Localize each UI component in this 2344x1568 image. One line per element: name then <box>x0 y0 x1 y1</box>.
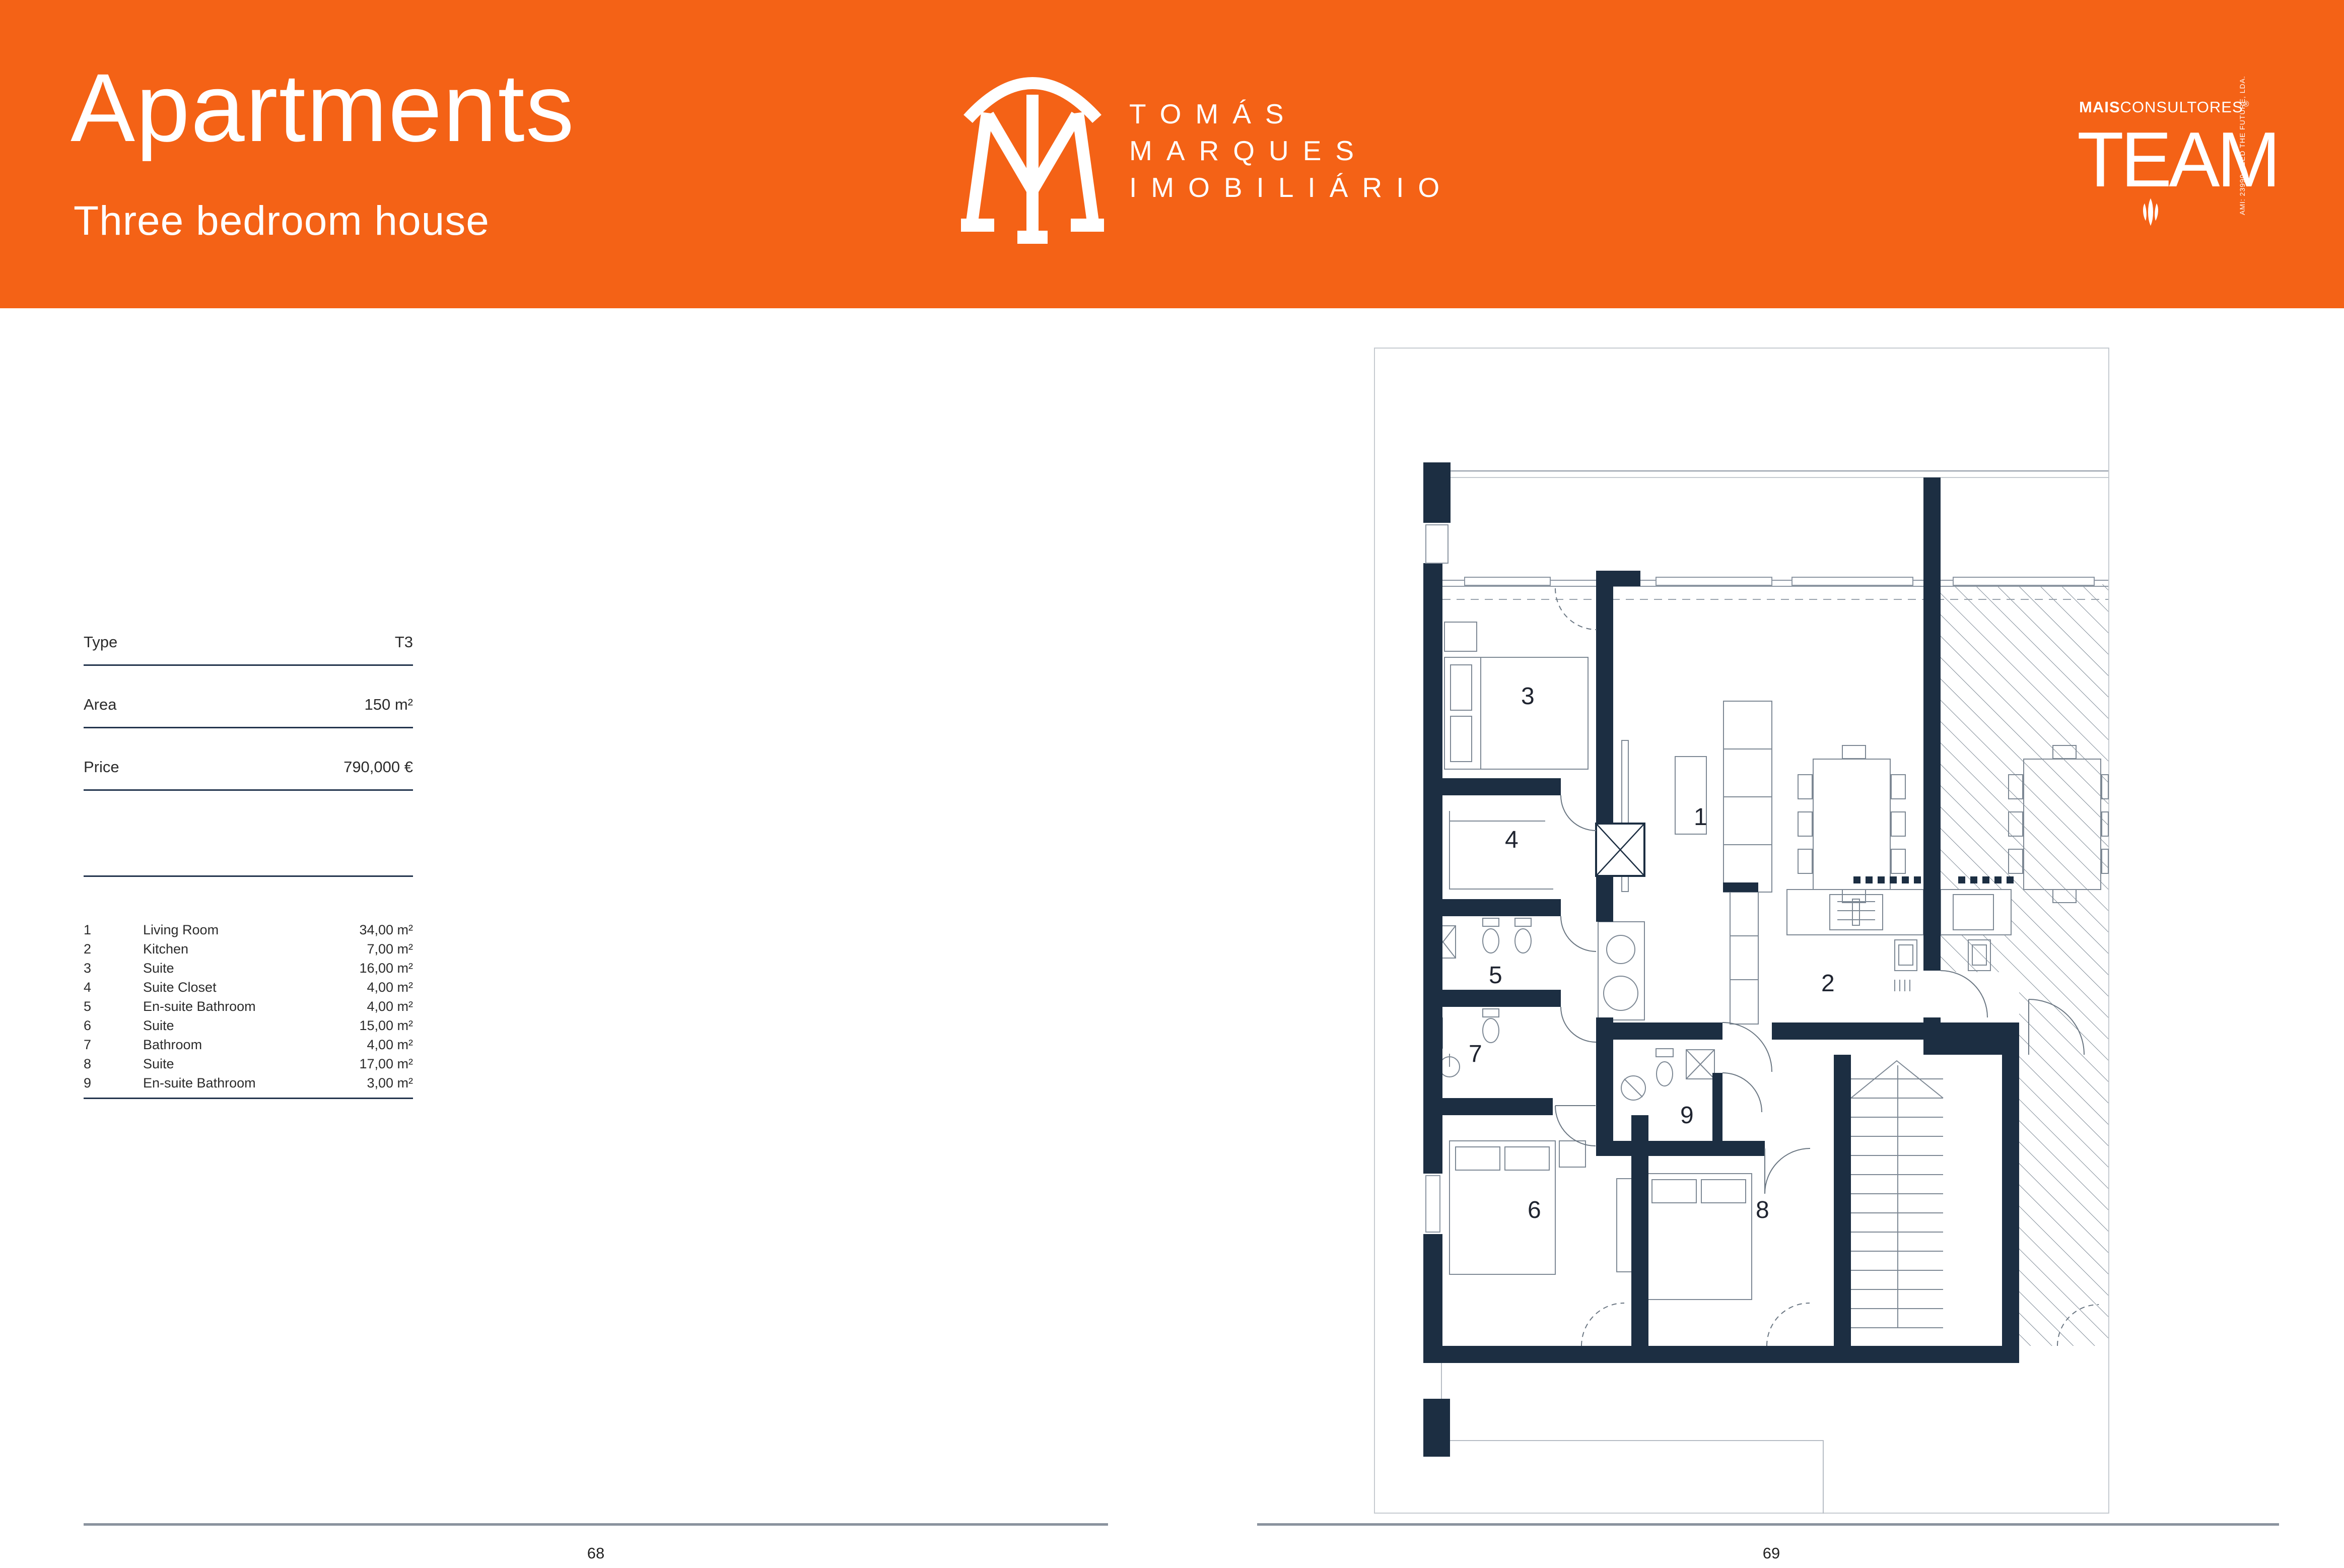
table-row: 5En-suite Bathroom4,00 m² <box>84 997 413 1016</box>
partner-wordmark: MAISCONSULTORES® <box>2079 98 2249 116</box>
page-title: Apartments <box>71 59 575 156</box>
room-area: 4,00 m² <box>327 997 413 1016</box>
page-number-right: 69 <box>1741 1544 1802 1562</box>
partner-wordmark-bold: MAIS <box>2079 98 2120 116</box>
room-area: 34,00 m² <box>327 920 413 939</box>
room-number: 4 <box>84 978 143 997</box>
room-number: 2 <box>84 939 143 959</box>
table-row: 6Suite15,00 m² <box>84 1016 413 1035</box>
room-area: 3,00 m² <box>327 1073 413 1093</box>
floor-plan: 1 2 3 4 5 6 7 8 9 <box>1374 348 2109 1514</box>
detail-row-price: Price 790,000 € <box>84 733 413 791</box>
room-name: Suite <box>143 959 327 978</box>
plan-label-suite-6: 6 <box>1528 1197 1541 1223</box>
elevator <box>1596 824 1644 876</box>
plan-label-bathroom-7: 7 <box>1469 1041 1482 1067</box>
partner-logo-block: MAISCONSULTORES® TEAM AMI: 23990 SEED TH… <box>2065 88 2307 249</box>
partner-ami-text: AMI: 23990 SEED THE FUTURE, LDA. <box>2238 119 2246 215</box>
room-name: Suite <box>143 1016 327 1035</box>
tm-monogram-icon <box>957 64 1108 246</box>
room-number: 1 <box>84 920 143 939</box>
room-name: En-suite Bathroom <box>143 1073 327 1093</box>
footer-rule-left <box>84 1523 1108 1526</box>
room-number: 3 <box>84 959 143 978</box>
details-table: Type T3 Area 150 m² Price 790,000 € <box>84 608 413 791</box>
brand-line-3: IMOBILIÁRIO <box>1129 169 1454 206</box>
table-row: 9En-suite Bathroom3,00 m² <box>84 1073 413 1093</box>
room-number: 6 <box>84 1016 143 1035</box>
brand-line-1: TOMÁS <box>1129 96 1454 132</box>
table-row: 4Suite Closet4,00 m² <box>84 978 413 997</box>
footer-rule-right <box>1257 1523 2279 1526</box>
leaf-icon <box>2141 198 2161 226</box>
room-area: 16,00 m² <box>327 959 413 978</box>
detail-value: T3 <box>395 633 413 651</box>
room-area: 7,00 m² <box>327 939 413 959</box>
detail-label: Area <box>84 696 116 714</box>
brand-block: TOMÁS MARQUES IMOBILIÁRIO <box>957 59 1511 251</box>
plan-label-suite-8: 8 <box>1756 1197 1769 1223</box>
table-row: 1Living Room34,00 m² <box>84 920 413 939</box>
room-name: En-suite Bathroom <box>143 997 327 1016</box>
plan-label-ensuite-9: 9 <box>1680 1102 1694 1129</box>
table-row: 2Kitchen7,00 m² <box>84 939 413 959</box>
room-name: Suite <box>143 1054 327 1073</box>
header-band: Apartments Three bedroom house <box>0 0 2344 308</box>
room-number: 8 <box>84 1054 143 1073</box>
room-name: Suite Closet <box>143 978 327 997</box>
room-number: 5 <box>84 997 143 1016</box>
room-number: 9 <box>84 1073 143 1093</box>
table-row: 3Suite16,00 m² <box>84 959 413 978</box>
detail-value: 150 m² <box>365 696 413 714</box>
detail-row-type: Type T3 <box>84 608 413 666</box>
table-row: 8Suite17,00 m² <box>84 1054 413 1073</box>
plan-label-kitchen: 2 <box>1821 970 1835 997</box>
table-row: 7Bathroom4,00 m² <box>84 1035 413 1054</box>
detail-label: Type <box>84 633 117 651</box>
plan-label-living-room: 1 <box>1694 804 1707 831</box>
detail-value: 790,000 € <box>343 758 413 776</box>
room-number: 7 <box>84 1035 143 1054</box>
brochure-page: Apartments Three bedroom house <box>0 0 2344 1568</box>
page-subtitle: Three bedroom house <box>74 197 490 245</box>
room-name: Kitchen <box>143 939 327 959</box>
room-area: 4,00 m² <box>327 1035 413 1054</box>
brand-wordmark: TOMÁS MARQUES IMOBILIÁRIO <box>1129 96 1454 206</box>
room-area: 15,00 m² <box>327 1016 413 1035</box>
detail-row-area: Area 150 m² <box>84 671 413 728</box>
plan-label-suite-closet: 4 <box>1505 827 1519 853</box>
partner-wordmark-rest: CONSULTORES <box>2120 98 2243 116</box>
room-name: Living Room <box>143 920 327 939</box>
room-area: 4,00 m² <box>327 978 413 997</box>
page-number-left: 68 <box>566 1544 626 1562</box>
brand-line-2: MARQUES <box>1129 132 1454 169</box>
room-list-table: 1Living Room34,00 m² 2Kitchen7,00 m² 3Su… <box>84 875 413 1099</box>
plan-label-ensuite-5: 5 <box>1489 962 1502 989</box>
plan-label-suite-3: 3 <box>1521 683 1535 710</box>
room-area: 17,00 m² <box>327 1054 413 1073</box>
detail-label: Price <box>84 758 119 776</box>
room-name: Bathroom <box>143 1035 327 1054</box>
partner-team-logotype: TEAM <box>2077 115 2278 205</box>
